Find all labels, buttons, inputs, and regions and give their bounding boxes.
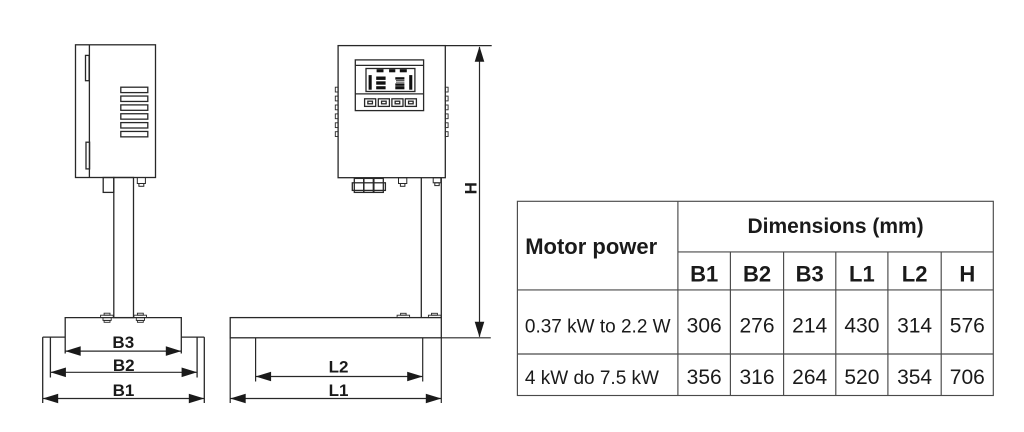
svg-text:576: 576 (950, 315, 985, 338)
svg-text:Motor power: Motor power (525, 234, 657, 259)
svg-text:276: 276 (739, 315, 774, 338)
svg-text:L1: L1 (329, 381, 349, 400)
svg-text:520: 520 (844, 366, 879, 389)
svg-text:356: 356 (687, 366, 722, 389)
svg-text:B1: B1 (113, 381, 135, 400)
svg-text:354: 354 (897, 366, 932, 389)
svg-text:706: 706 (950, 366, 985, 389)
svg-text:L2: L2 (902, 262, 928, 287)
svg-text:H: H (462, 182, 481, 194)
svg-text:B3: B3 (112, 333, 134, 352)
svg-text:306: 306 (687, 315, 722, 338)
svg-text:316: 316 (739, 366, 774, 389)
svg-text:L1: L1 (849, 262, 875, 287)
svg-text:4 kW do 7.5 kW: 4 kW do 7.5 kW (525, 368, 659, 389)
svg-text:314: 314 (897, 315, 932, 338)
svg-text:B2: B2 (113, 356, 135, 375)
svg-text:0.37 kW to 2.2 W: 0.37 kW to 2.2 W (525, 317, 671, 338)
svg-text:264: 264 (792, 366, 827, 389)
svg-text:B3: B3 (796, 262, 824, 287)
svg-text:214: 214 (792, 315, 827, 338)
svg-text:Dimensions (mm): Dimensions (mm) (747, 215, 923, 238)
svg-text:B2: B2 (743, 262, 771, 287)
svg-text:B1: B1 (690, 262, 718, 287)
svg-text:L2: L2 (329, 358, 349, 377)
svg-text:H: H (959, 262, 975, 287)
svg-text:430: 430 (844, 315, 879, 338)
